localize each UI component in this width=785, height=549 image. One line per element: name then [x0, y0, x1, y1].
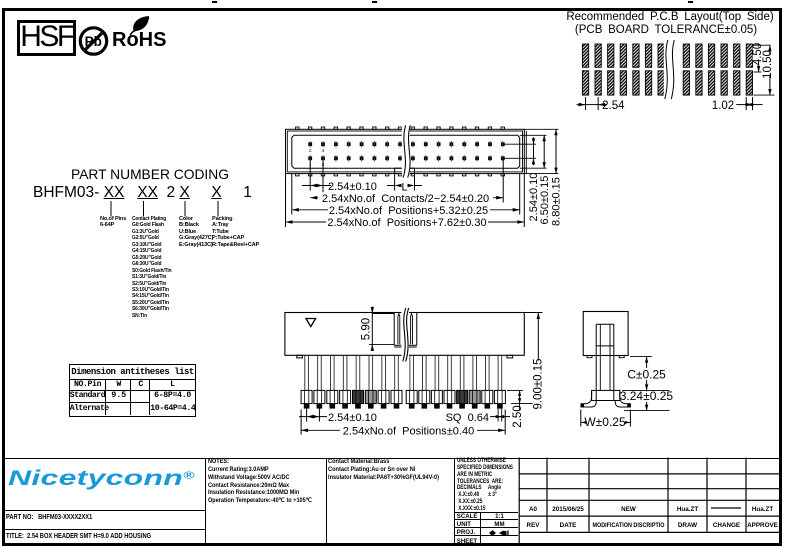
svg-text:CHANGE: CHANGE	[713, 522, 740, 529]
svg-text:DATE: DATE	[560, 522, 577, 529]
svg-text:2015/06/25: 2015/06/25	[552, 506, 584, 513]
svg-text:REV: REV	[527, 522, 541, 529]
svg-text:DRAW: DRAW	[678, 522, 697, 529]
svg-text:Hua.ZT: Hua.ZT	[677, 506, 698, 513]
svg-text:NEW: NEW	[621, 506, 636, 513]
svg-text:A0: A0	[529, 506, 538, 513]
svg-text:MODIFICATION DISCRIPTIO: MODIFICATION DISCRIPTIO	[593, 522, 665, 529]
svg-text:APPROVE: APPROVE	[747, 522, 778, 529]
svg-text:Hua.ZT: Hua.ZT	[752, 506, 773, 513]
